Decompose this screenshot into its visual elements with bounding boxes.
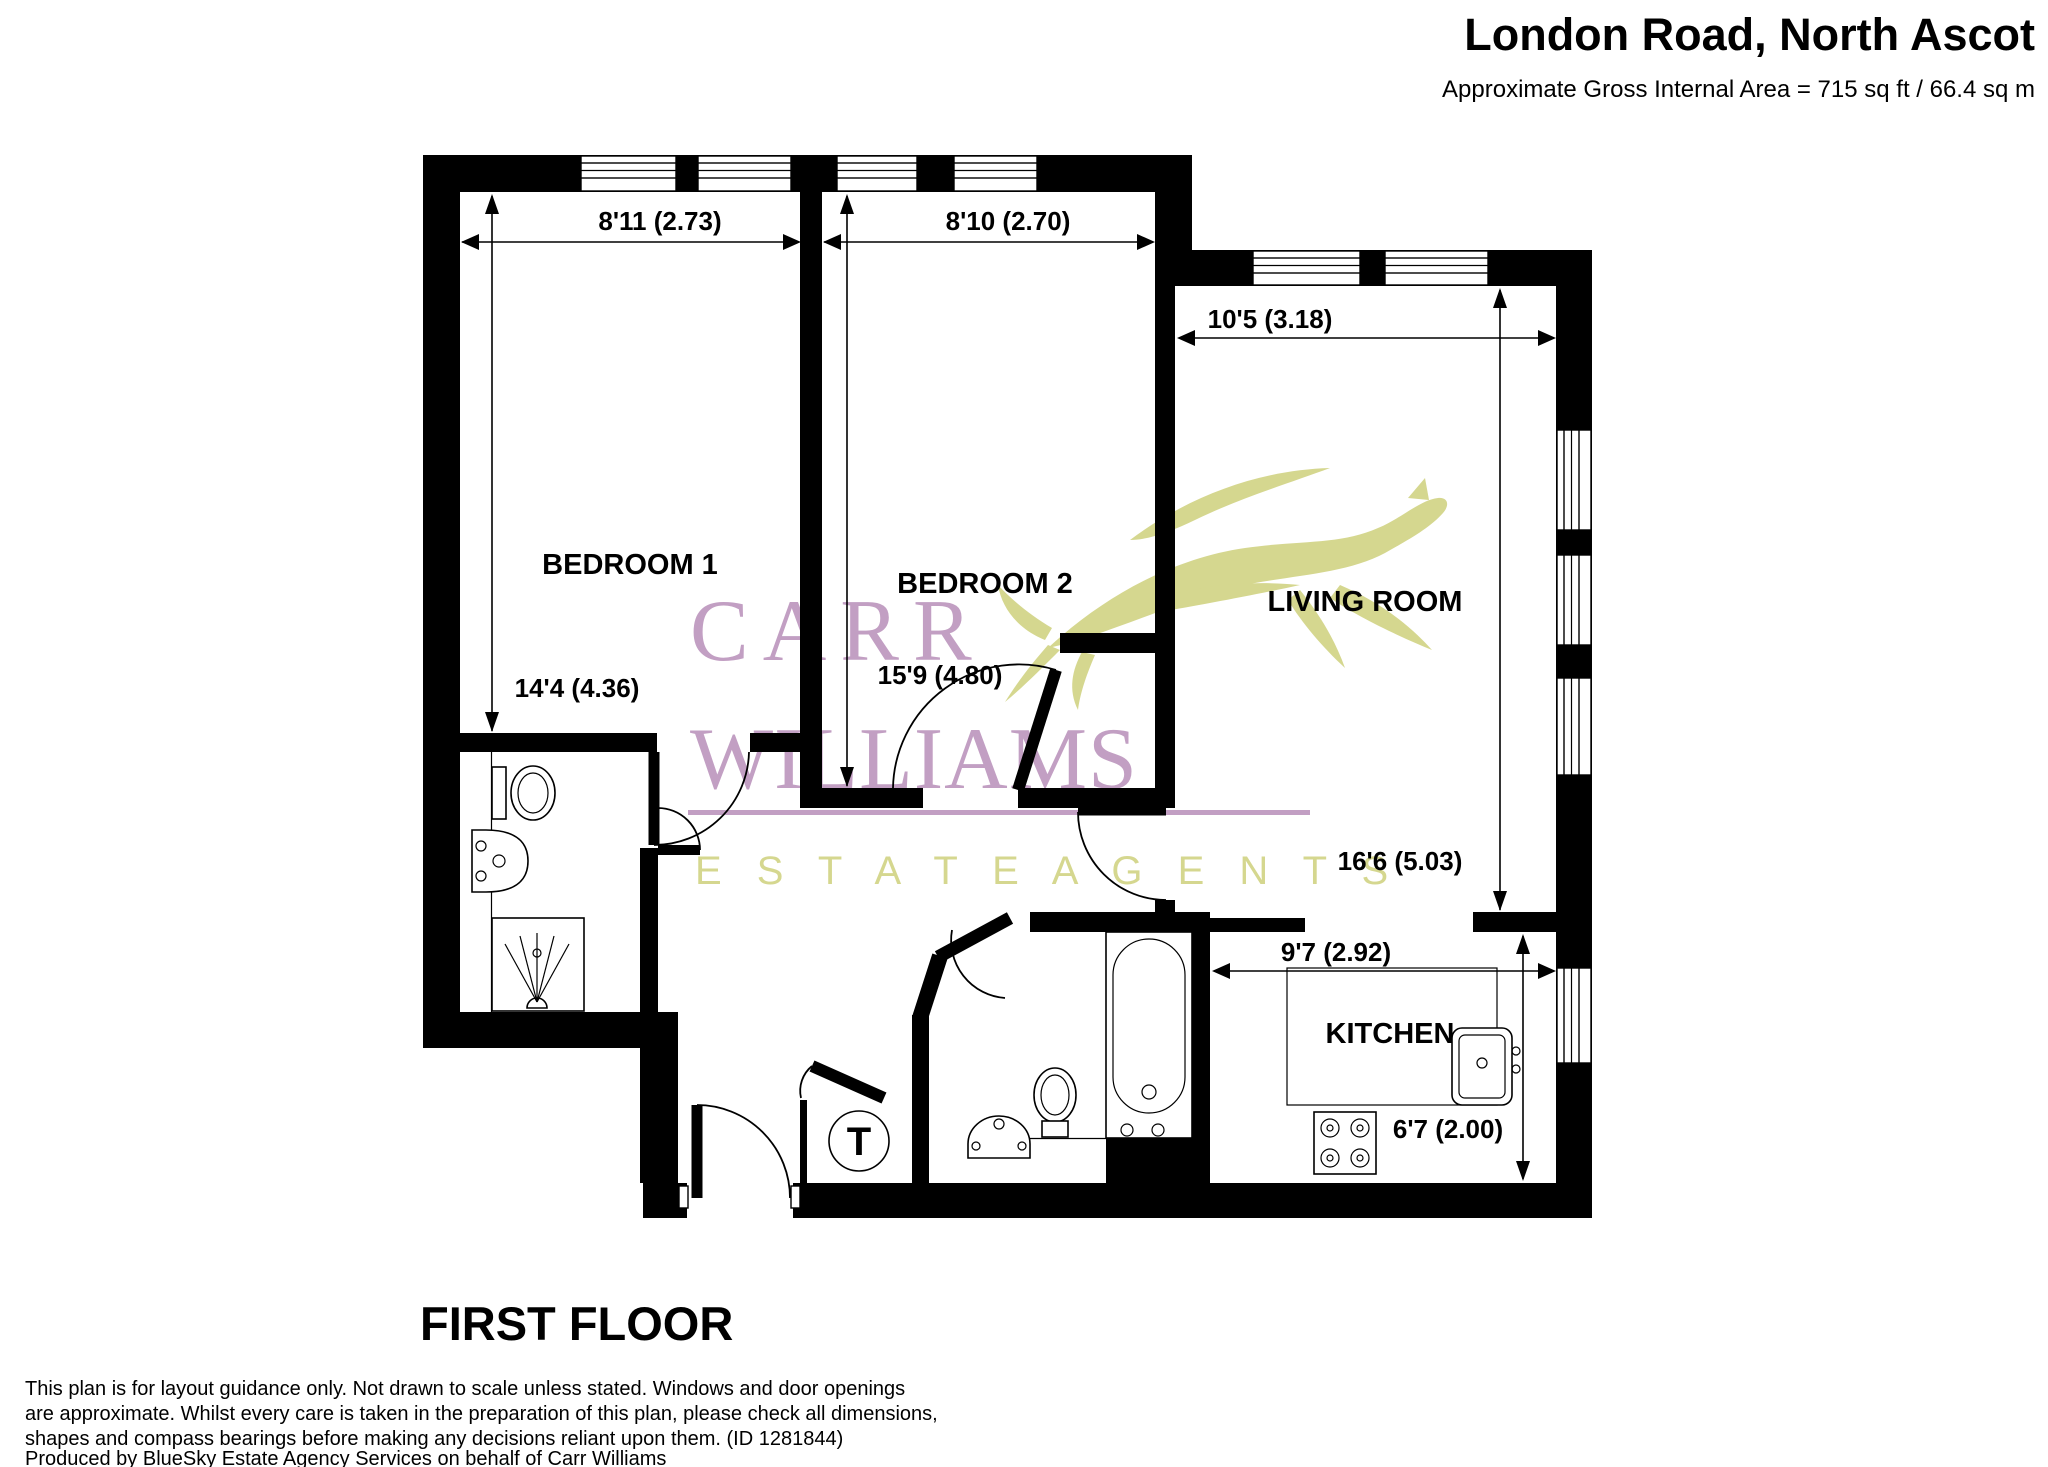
window-icon xyxy=(1557,678,1591,775)
floorplan-page: CARR WILLIAMS E S T A T E A G E N T S Lo… xyxy=(0,0,2048,1467)
disclaimer-line: This plan is for layout guidance only. N… xyxy=(25,1378,905,1400)
window-icon xyxy=(1557,430,1591,530)
dim-bedroom-2 xyxy=(823,194,1155,787)
window-icon xyxy=(1557,968,1591,1063)
shower-icon xyxy=(492,918,584,1011)
room-label-kitchen: KITCHEN xyxy=(1326,1018,1455,1050)
dim-label-bedroom-2-width: 8'10 (2.70) xyxy=(946,206,1071,236)
ensuite-basin-icon xyxy=(472,830,528,892)
dim-label-bedroom-1-width: 8'11 (2.73) xyxy=(598,206,721,236)
brand-underline xyxy=(688,810,1310,815)
disclaimer-line: shapes and compass bearings before makin… xyxy=(25,1428,843,1450)
dim-label-bedroom-2-depth: 15'9 (4.80) xyxy=(878,660,1003,690)
dim-label-bedroom-1-depth: 14'4 (4.36) xyxy=(515,673,640,703)
wall-diagonal xyxy=(920,956,940,1018)
footer: FIRST FLOOR This plan is for layout guid… xyxy=(25,1297,938,1467)
dim-label-living-room-depth: 16'6 (5.03) xyxy=(1338,846,1463,876)
water-tank-icon: T xyxy=(829,1111,889,1171)
brand-word-3: E S T A T E A G E N T S xyxy=(695,849,1400,893)
window-icon xyxy=(698,156,791,191)
page-title: London Road, North Ascot xyxy=(1464,9,2035,60)
header: London Road, North Ascot Approximate Gro… xyxy=(1442,9,2035,103)
ensuite-toilet-icon xyxy=(492,766,555,820)
window-icon xyxy=(954,156,1037,191)
room-label-bedroom-1: BEDROOM 1 xyxy=(542,549,718,581)
bathroom-basin-icon xyxy=(968,1116,1030,1158)
room-label-living-room: LIVING ROOM xyxy=(1268,586,1463,618)
water-tank-label: T xyxy=(847,1120,871,1164)
window-icon xyxy=(1557,555,1591,645)
kitchen-sink-icon xyxy=(1452,1028,1520,1105)
floor-label: FIRST FLOOR xyxy=(420,1297,733,1350)
door-bathroom xyxy=(938,918,1010,998)
disclaimer-line: Produced by BlueSky Estate Agency Servic… xyxy=(25,1448,666,1467)
bath-icon xyxy=(1106,932,1192,1138)
page-subtitle: Approximate Gross Internal Area = 715 sq… xyxy=(1442,76,2035,103)
dim-label-living-room-width: 10'5 (3.18) xyxy=(1208,304,1333,334)
window-icon xyxy=(837,156,917,191)
door-closet xyxy=(800,1066,884,1098)
hob-icon xyxy=(1314,1112,1376,1174)
room-label-bedroom-2: BEDROOM 2 xyxy=(897,568,1073,600)
window-icon xyxy=(1253,251,1360,285)
labels: BEDROOM 1 BEDROOM 2 LIVING ROOM KITCHEN … xyxy=(515,206,1503,1144)
bathroom-toilet-icon xyxy=(1034,1068,1076,1137)
door-entrance xyxy=(679,1105,800,1208)
dim-label-kitchen-depth: 6'7 (2.00) xyxy=(1393,1114,1503,1144)
window-icon xyxy=(581,156,676,191)
disclaimer-line: are approximate. Whilst every care is ta… xyxy=(25,1403,938,1425)
dim-label-kitchen-width: 9'7 (2.92) xyxy=(1281,937,1391,967)
window-icon xyxy=(1385,251,1488,285)
